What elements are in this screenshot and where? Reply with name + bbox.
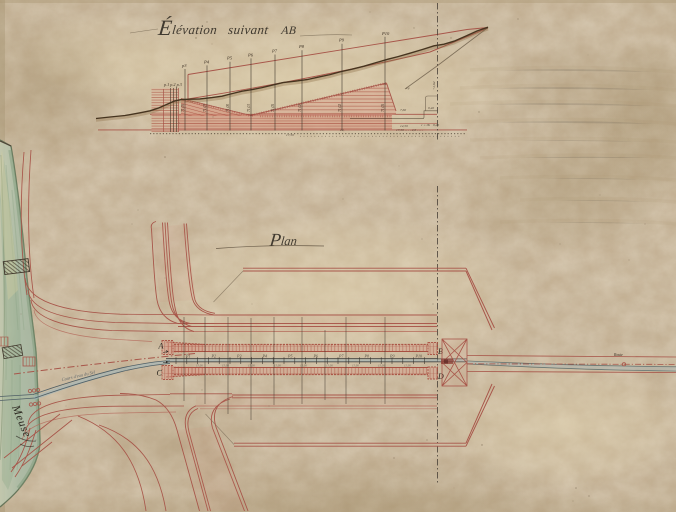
svg-text:Plan: Plan <box>268 230 298 251</box>
svg-text:P3: P3 <box>236 353 241 358</box>
svg-text:P10: P10 <box>381 31 390 36</box>
svg-text:P1: P1 <box>185 353 190 358</box>
svg-text:P7: P7 <box>271 49 278 54</box>
svg-text:Route: Route <box>613 353 623 357</box>
svg-text:P6: P6 <box>247 52 254 57</box>
svg-text:P2: P2 <box>211 353 216 358</box>
svg-text:P4: P4 <box>262 353 267 358</box>
svg-text:p3: p3 <box>181 63 187 68</box>
svg-text:P10: P10 <box>415 353 422 358</box>
svg-text:P5: P5 <box>226 56 233 61</box>
svg-text:p.1 p.2 p.3: p.1 p.2 p.3 <box>163 82 182 87</box>
svg-text:c = 0k: c = 0k <box>421 123 430 127</box>
svg-text:A: A <box>158 342 164 351</box>
svg-text:P9: P9 <box>389 353 394 358</box>
svg-text:C: C <box>157 369 163 378</box>
svg-text:P5: P5 <box>287 353 292 358</box>
svg-text:P8: P8 <box>364 353 369 358</box>
svg-text:1g: 1g <box>406 86 410 90</box>
svg-text:P9: P9 <box>338 38 345 43</box>
svg-text:P4: P4 <box>203 59 210 64</box>
svg-text:P6: P6 <box>313 353 318 358</box>
svg-text:P8: P8 <box>298 44 305 49</box>
